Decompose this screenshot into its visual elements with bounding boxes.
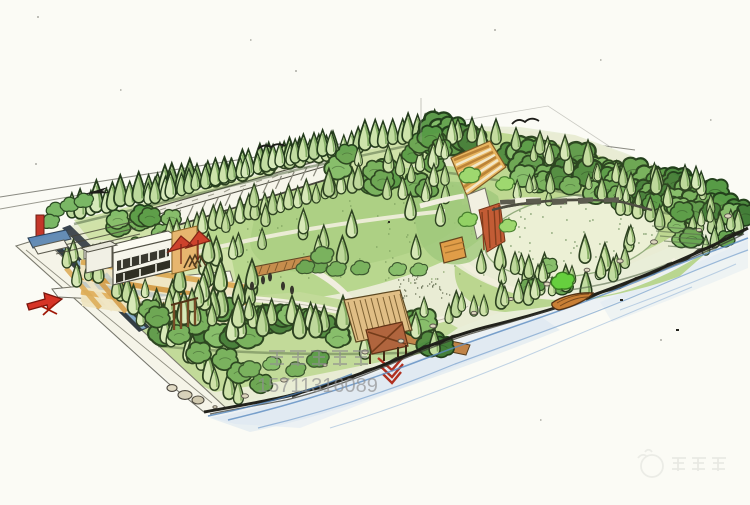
- svg-text:15711316089: 15711316089: [257, 375, 378, 397]
